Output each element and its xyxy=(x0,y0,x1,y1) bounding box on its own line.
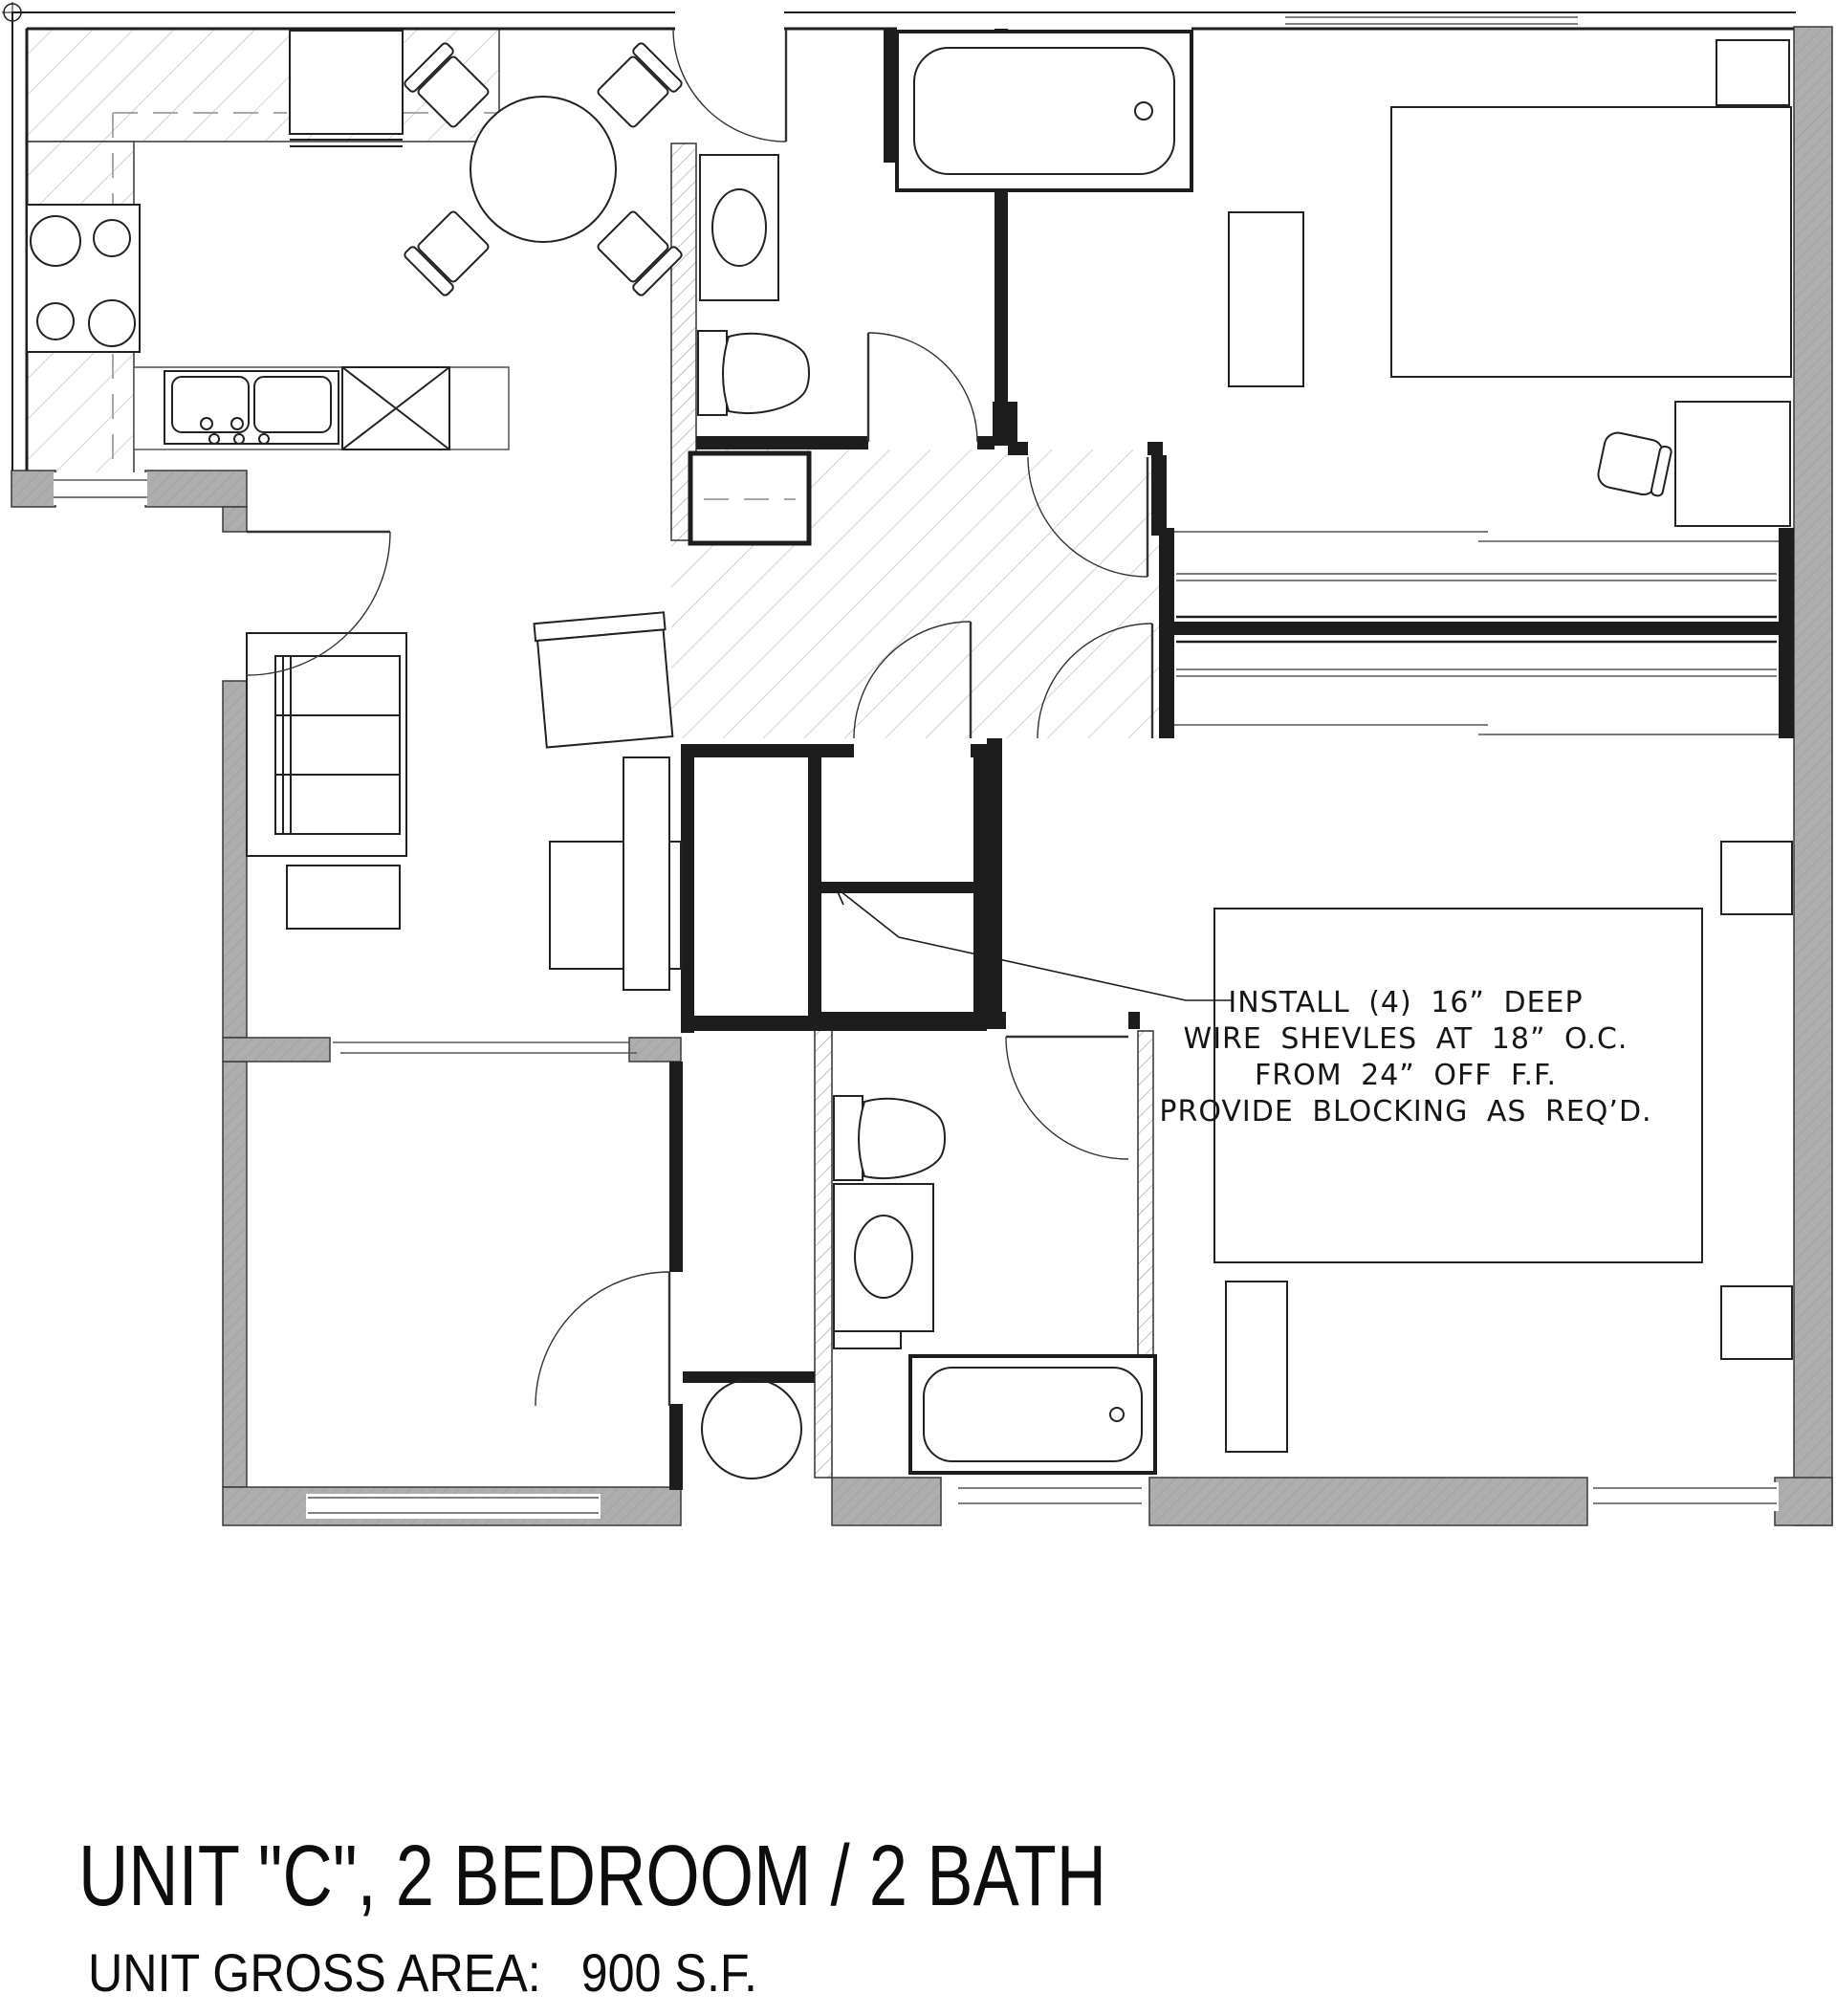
annotation-line-3: FROM 24” OFF F.F. xyxy=(1255,1059,1557,1092)
toilet-1-bowl xyxy=(723,334,809,413)
den-room xyxy=(702,1379,801,1479)
bath2-door xyxy=(1006,1037,1128,1159)
leader-line xyxy=(836,887,1234,1000)
armchair xyxy=(535,612,675,747)
bath2-window xyxy=(956,1482,1144,1511)
title-block: UNIT "C", 2 BEDROOM / 2 BATH UNIT GROSS … xyxy=(78,1829,1106,2003)
nightstand-2a xyxy=(1721,842,1792,914)
nightstand-1 xyxy=(1716,40,1789,105)
stove xyxy=(27,205,140,352)
gross-area-note: UNIT GROSS AREA: 900 S.F. xyxy=(88,1942,757,2003)
floor-plan-sheet: { "drawing": { "title": "UNIT \"C\", 2 B… xyxy=(0,0,1836,2016)
dining-chair xyxy=(594,208,683,296)
refrigerator xyxy=(290,31,403,134)
dining-chair xyxy=(404,208,492,296)
annotation-line-1: INSTALL (4) 16” DEEP xyxy=(1228,986,1583,1019)
bedroom-2 xyxy=(1214,842,1792,1452)
bathroom-2 xyxy=(834,1096,1155,1473)
nightstand-2b xyxy=(1721,1286,1792,1359)
bed-1 xyxy=(1391,107,1791,377)
annotation-line-4: PROVIDE BLOCKING AS REQ’D. xyxy=(1159,1095,1651,1129)
utility-closet xyxy=(690,453,809,543)
dresser-2 xyxy=(1226,1282,1287,1452)
desk xyxy=(1675,402,1790,526)
sheet-title: UNIT "C", 2 BEDROOM / 2 BATH xyxy=(78,1829,1106,1924)
dining-area xyxy=(404,42,684,297)
living-room xyxy=(247,612,681,990)
bedroom2-window xyxy=(1591,1482,1779,1511)
dining-hall-door xyxy=(673,29,786,142)
bedroom-1 xyxy=(1229,40,1791,526)
dining-table xyxy=(470,97,616,242)
linen-cabinet xyxy=(623,757,669,990)
water-heater xyxy=(702,1379,801,1479)
vanity-2 xyxy=(834,1184,933,1331)
den-door xyxy=(535,1272,669,1406)
dining-chair xyxy=(594,42,683,131)
dresser-1 xyxy=(1229,212,1303,386)
toilet-2-bowl xyxy=(859,1099,945,1178)
desk-chair xyxy=(1596,430,1673,498)
bath1-door xyxy=(868,333,977,442)
end-table xyxy=(287,866,400,929)
floor-plan-drawing: INSTALL (4) 16” DEEP WIRE SHEVLES AT 18”… xyxy=(0,0,1836,2016)
annotation-line-2: WIRE SHEVLES AT 18” O.C. xyxy=(1184,1022,1628,1056)
bathtub-2 xyxy=(910,1356,1155,1473)
bathtub-1 xyxy=(897,32,1191,190)
kitchen-window xyxy=(54,472,147,505)
